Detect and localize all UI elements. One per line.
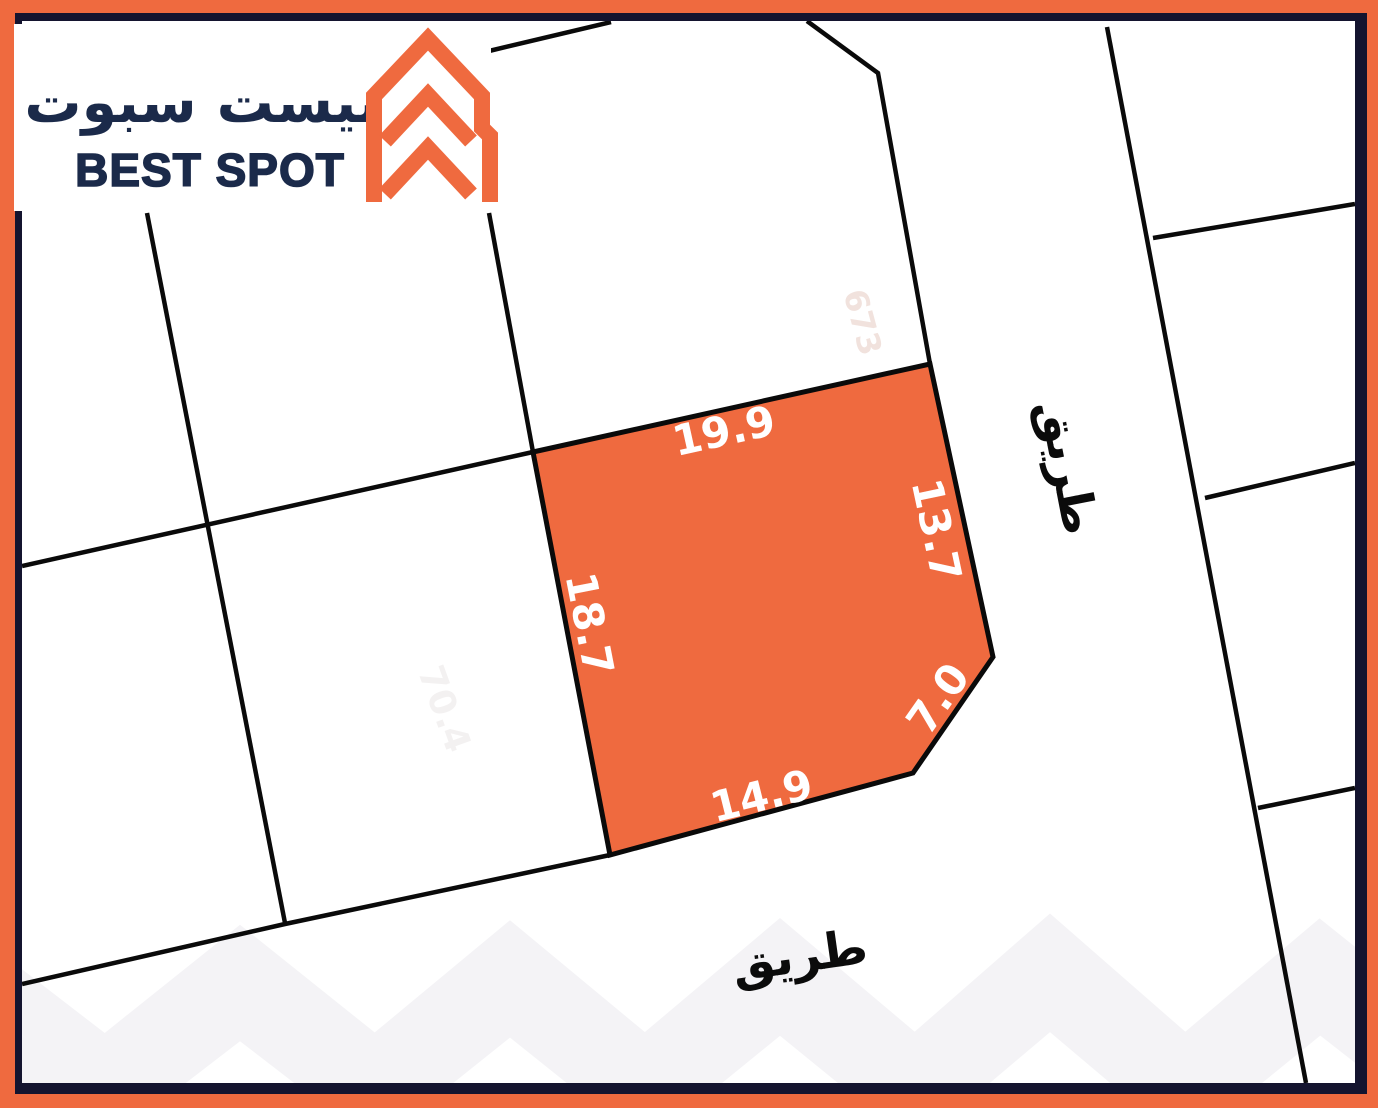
logo-english-text: BEST SPOT — [75, 144, 345, 196]
logo-arabic-text: بيست سبوت — [24, 70, 379, 136]
plot-map: 70.4 673 — [0, 0, 1378, 1108]
best-spot-logo: بيست سبوت BEST SPOT — [14, 24, 491, 211]
land-plot-advert: 70.4 673 — [0, 0, 1378, 1108]
